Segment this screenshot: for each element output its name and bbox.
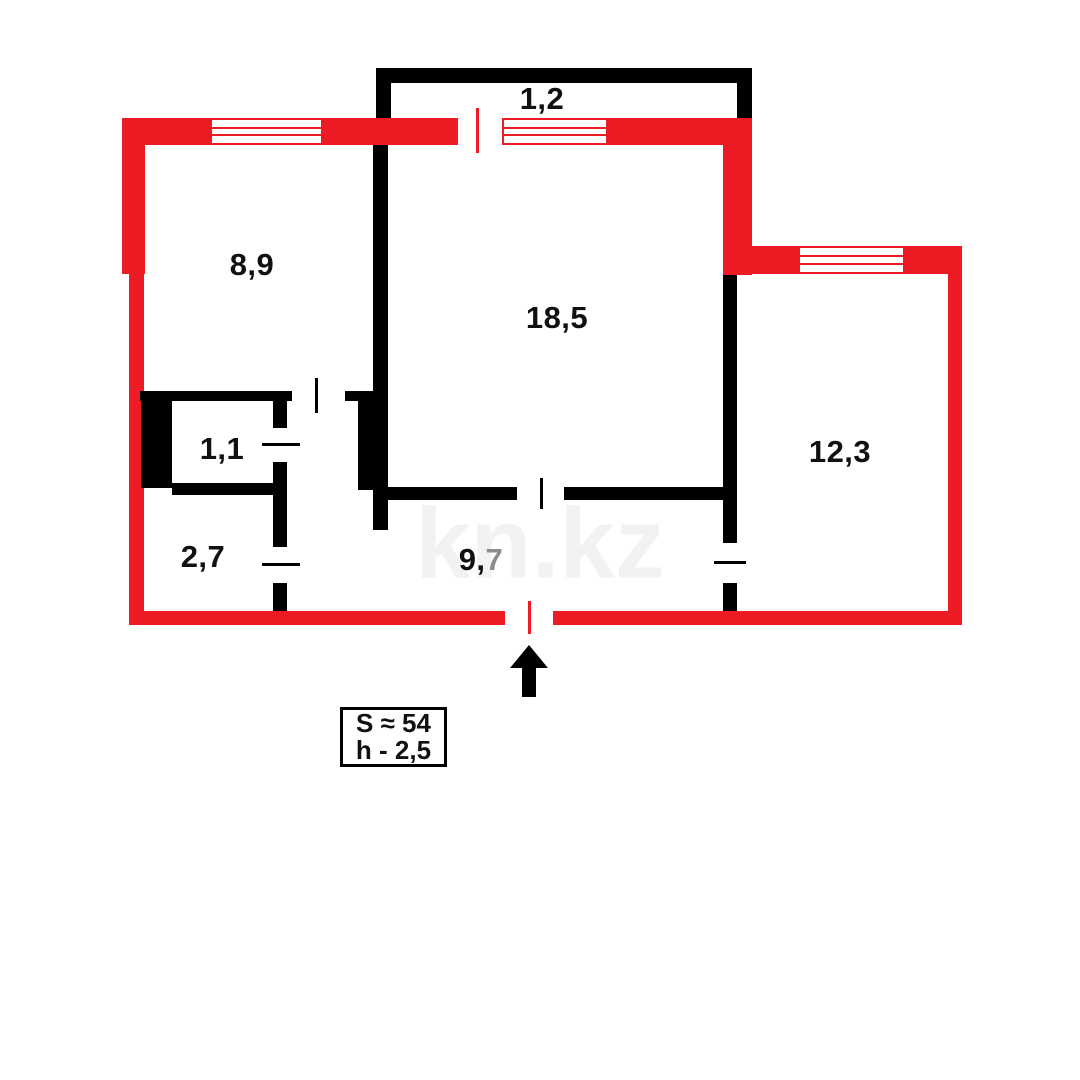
wall-center-vertical (373, 145, 388, 530)
wall-hall-left-seg1 (273, 391, 287, 428)
balcony-door-gap (458, 118, 502, 145)
room-label-hall-suffix: 7 (486, 542, 504, 577)
info-total-area: S ≈ 54 (356, 710, 431, 737)
wall-right-room-upper-seg (723, 275, 737, 543)
outer-wall-right-vertical-upper (723, 145, 752, 275)
room-label-right: 12,3 (809, 434, 871, 470)
info-ceiling-height: h - 2,5 (356, 737, 431, 764)
door-tick-bathroom (262, 563, 300, 566)
door-tick-wc (262, 443, 300, 446)
wall-right-room-lower-seg (723, 583, 737, 611)
wall-wc-top-right-seg (345, 391, 373, 401)
floor-plan: kn.kz 1,2 8,9 18,5 (0, 0, 1080, 1080)
room-label-center: 18,5 (526, 300, 588, 336)
info-box: S ≈ 54 h - 2,5 (340, 707, 447, 767)
window-room-center (502, 118, 608, 145)
wall-center-vertical-thick (358, 393, 373, 490)
window-room-right (798, 246, 905, 274)
wall-hall-left-seg3 (273, 583, 287, 611)
wall-wc-left-thick (141, 391, 172, 488)
entry-door-tick (528, 601, 531, 634)
door-tick-room-center (540, 478, 543, 509)
entry-arrow-shaft (522, 665, 536, 697)
balcony-right-wall (737, 83, 752, 119)
door-tick-wc-top (315, 378, 318, 413)
wall-center-bottom-right-seg (563, 487, 737, 500)
outer-wall-left-upper (122, 118, 145, 274)
room-label-wc: 1,1 (200, 431, 245, 467)
door-tick-room-right (714, 561, 746, 564)
room-label-hall-prefix: 9, (459, 542, 486, 577)
wall-wc-bathroom (172, 483, 287, 495)
window-room-top-left (210, 118, 323, 145)
balcony-left-wall (376, 83, 391, 119)
room-label-top-left: 8,9 (230, 247, 275, 283)
room-label-hall: 9,7 (459, 542, 504, 578)
outer-wall-right (948, 246, 962, 625)
room-label-bathroom: 2,7 (181, 539, 226, 575)
wall-center-bottom-left-seg (377, 487, 518, 500)
balcony-door-tick (476, 108, 479, 153)
wall-hall-left-seg2 (273, 462, 287, 547)
room-label-balcony: 1,2 (520, 81, 565, 117)
